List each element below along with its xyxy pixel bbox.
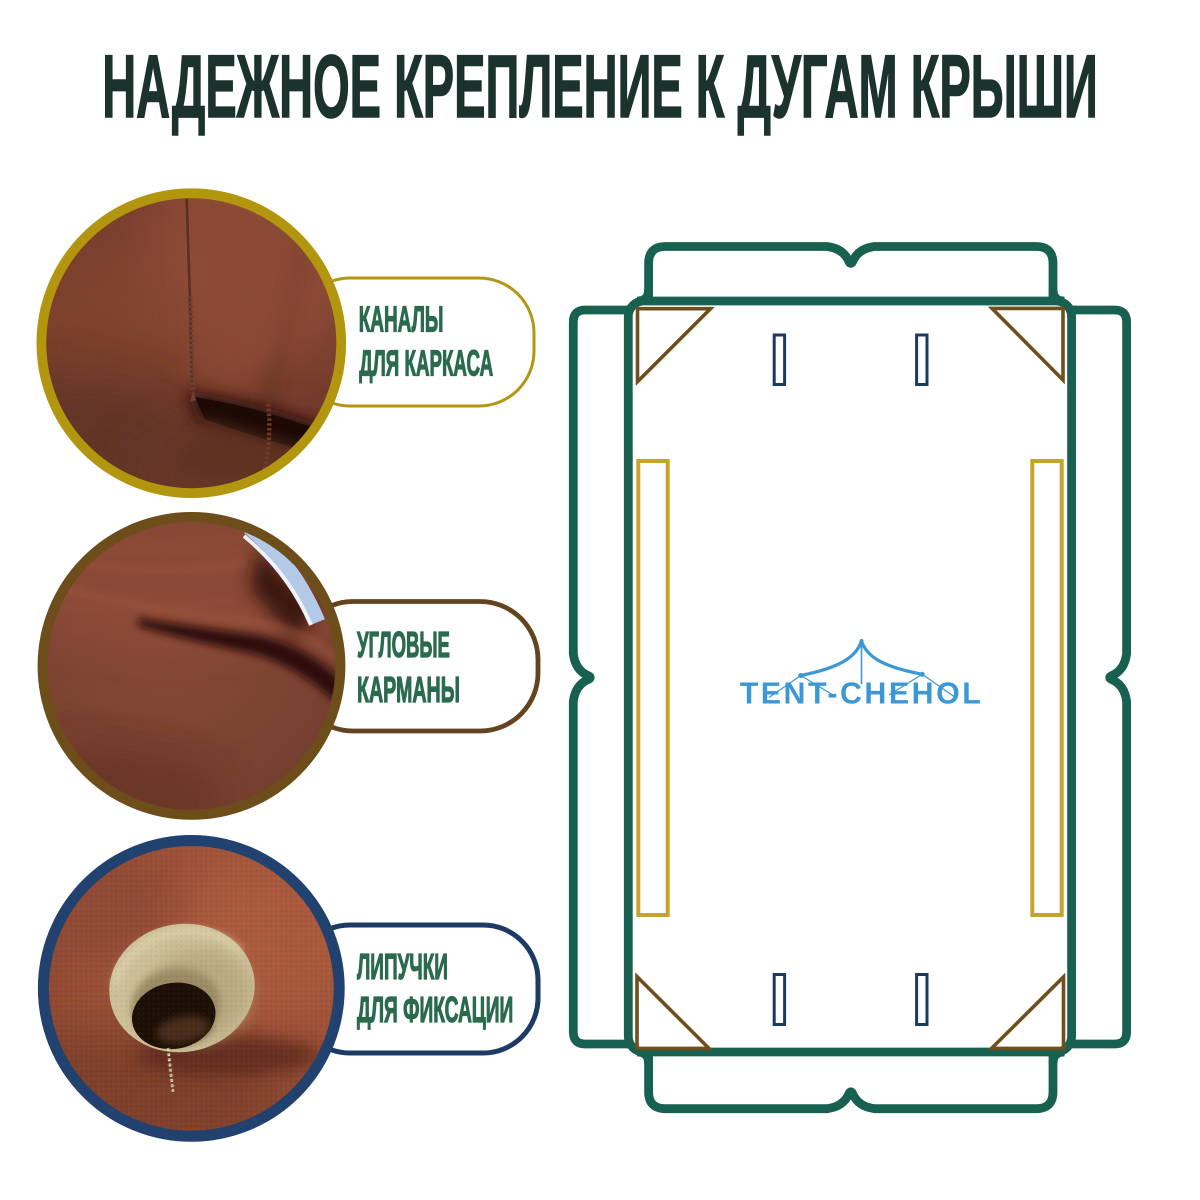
svg-text:TENT-CHEHOL: TENT-CHEHOL	[740, 677, 984, 711]
svg-text:КАНАЛЫ: КАНАЛЫ	[359, 300, 444, 340]
svg-text:ДЛЯ КАРКАСА: ДЛЯ КАРКАСА	[359, 344, 493, 384]
svg-text:УГЛОВЫЕ: УГЛОВЫЕ	[357, 625, 450, 665]
svg-text:ДЛЯ ФИКСАЦИИ: ДЛЯ ФИКСАЦИИ	[357, 991, 513, 1031]
svg-text:ЛИПУЧКИ: ЛИПУЧКИ	[357, 948, 448, 988]
svg-text:КАРМАНЫ: КАРМАНЫ	[357, 670, 460, 711]
svg-text:НАДЕЖНОЕ КРЕПЛЕНИЕ К ДУГАМ КРЫ: НАДЕЖНОЕ КРЕПЛЕНИЕ К ДУГАМ КРЫШИ	[102, 37, 1098, 137]
